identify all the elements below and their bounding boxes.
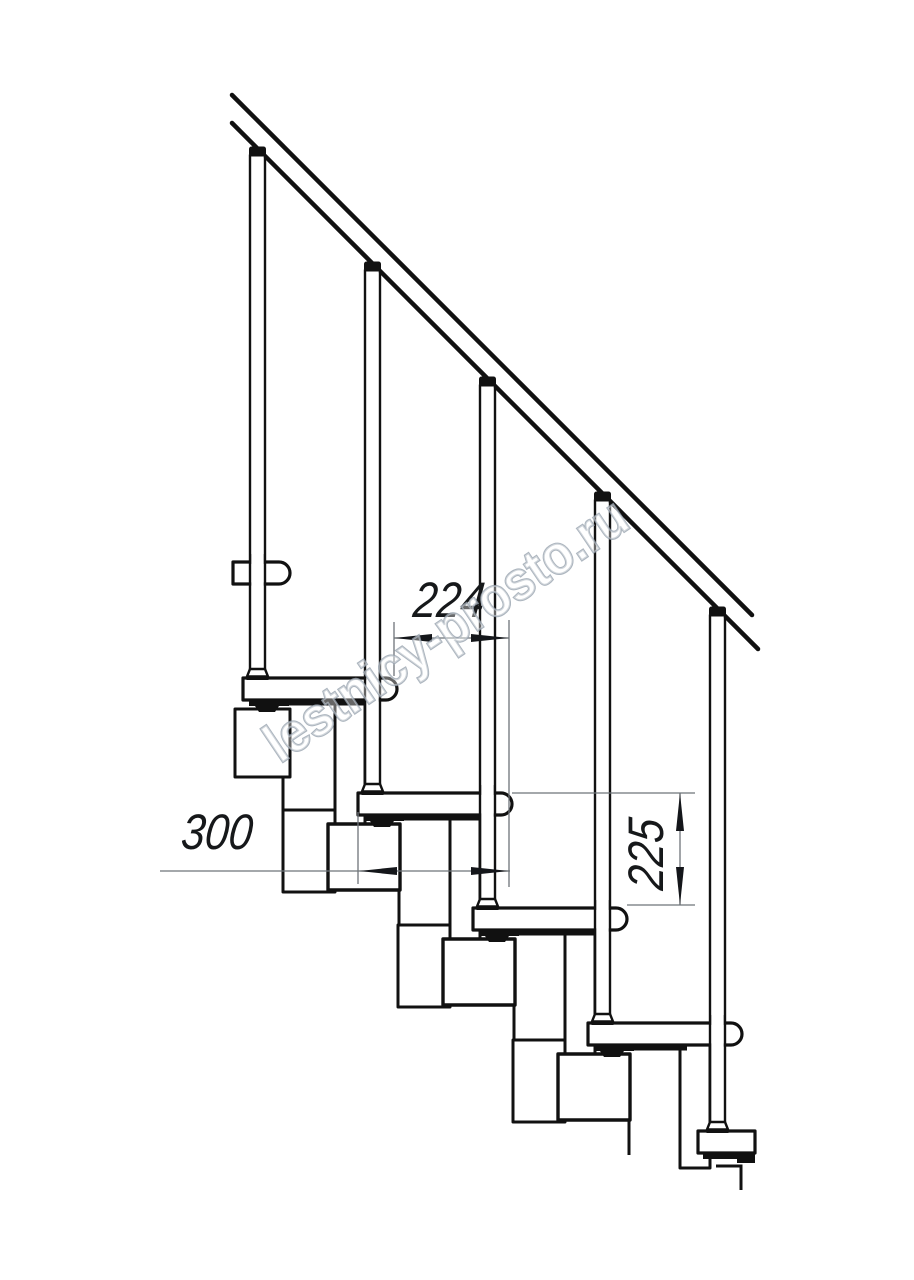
baluster <box>247 147 269 681</box>
watermark-text: lestnicy-prosto.ru <box>252 485 639 774</box>
module-box <box>443 939 515 1005</box>
support-modules <box>235 698 710 1168</box>
dimension-depth-label: 300 <box>179 804 256 860</box>
bottom-cut-bracket <box>716 1166 741 1190</box>
dimension-rise-label: 225 <box>618 815 674 893</box>
module-box <box>558 1054 630 1120</box>
tread-5 <box>698 1131 755 1153</box>
watermark: lestnicy-prosto.ru <box>252 485 639 774</box>
drawing-page: 224 300 225 lestnicy-prosto.ru <box>0 0 914 1280</box>
baluster <box>592 492 614 1026</box>
baluster <box>707 607 729 1134</box>
arrow-down-icon <box>676 867 684 905</box>
staircase-drawing: 224 300 225 lestnicy-prosto.ru <box>0 0 914 1280</box>
module-box <box>328 824 400 890</box>
arrow-up-icon <box>676 793 684 831</box>
